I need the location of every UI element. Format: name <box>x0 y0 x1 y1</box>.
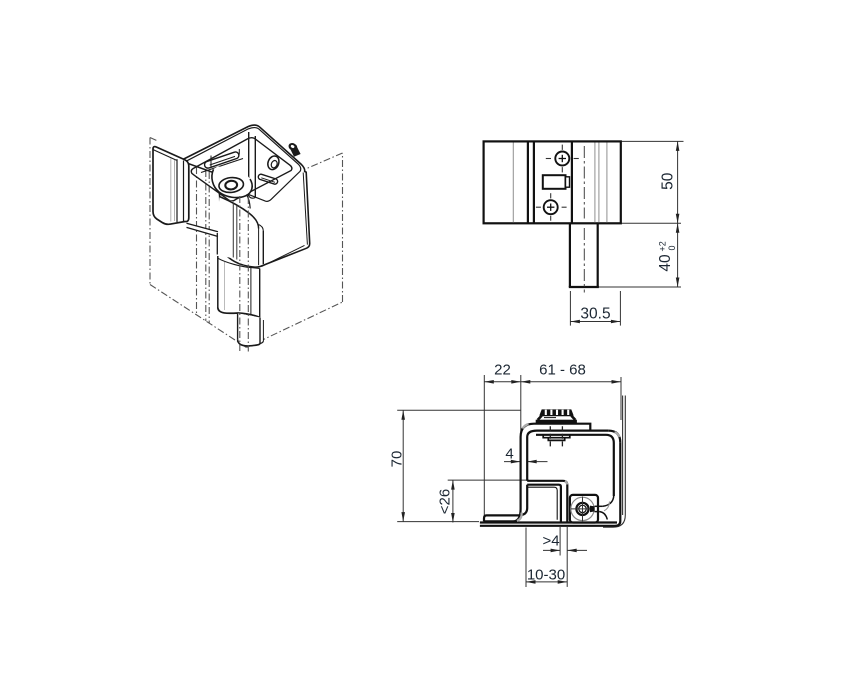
svg-text:50: 50 <box>660 172 677 190</box>
svg-text:30.5: 30.5 <box>580 306 610 323</box>
svg-text:10-30: 10-30 <box>527 567 565 584</box>
svg-text:<26: <26 <box>437 489 454 514</box>
svg-text:61 - 68: 61 - 68 <box>539 362 586 379</box>
svg-text:22: 22 <box>494 362 511 379</box>
svg-text:70: 70 <box>389 451 406 468</box>
svg-text:>4: >4 <box>542 533 559 550</box>
svg-text:+2: +2 <box>658 241 668 251</box>
svg-text:0: 0 <box>667 245 677 250</box>
svg-text:4: 4 <box>505 446 513 463</box>
svg-text:40: 40 <box>657 254 674 272</box>
